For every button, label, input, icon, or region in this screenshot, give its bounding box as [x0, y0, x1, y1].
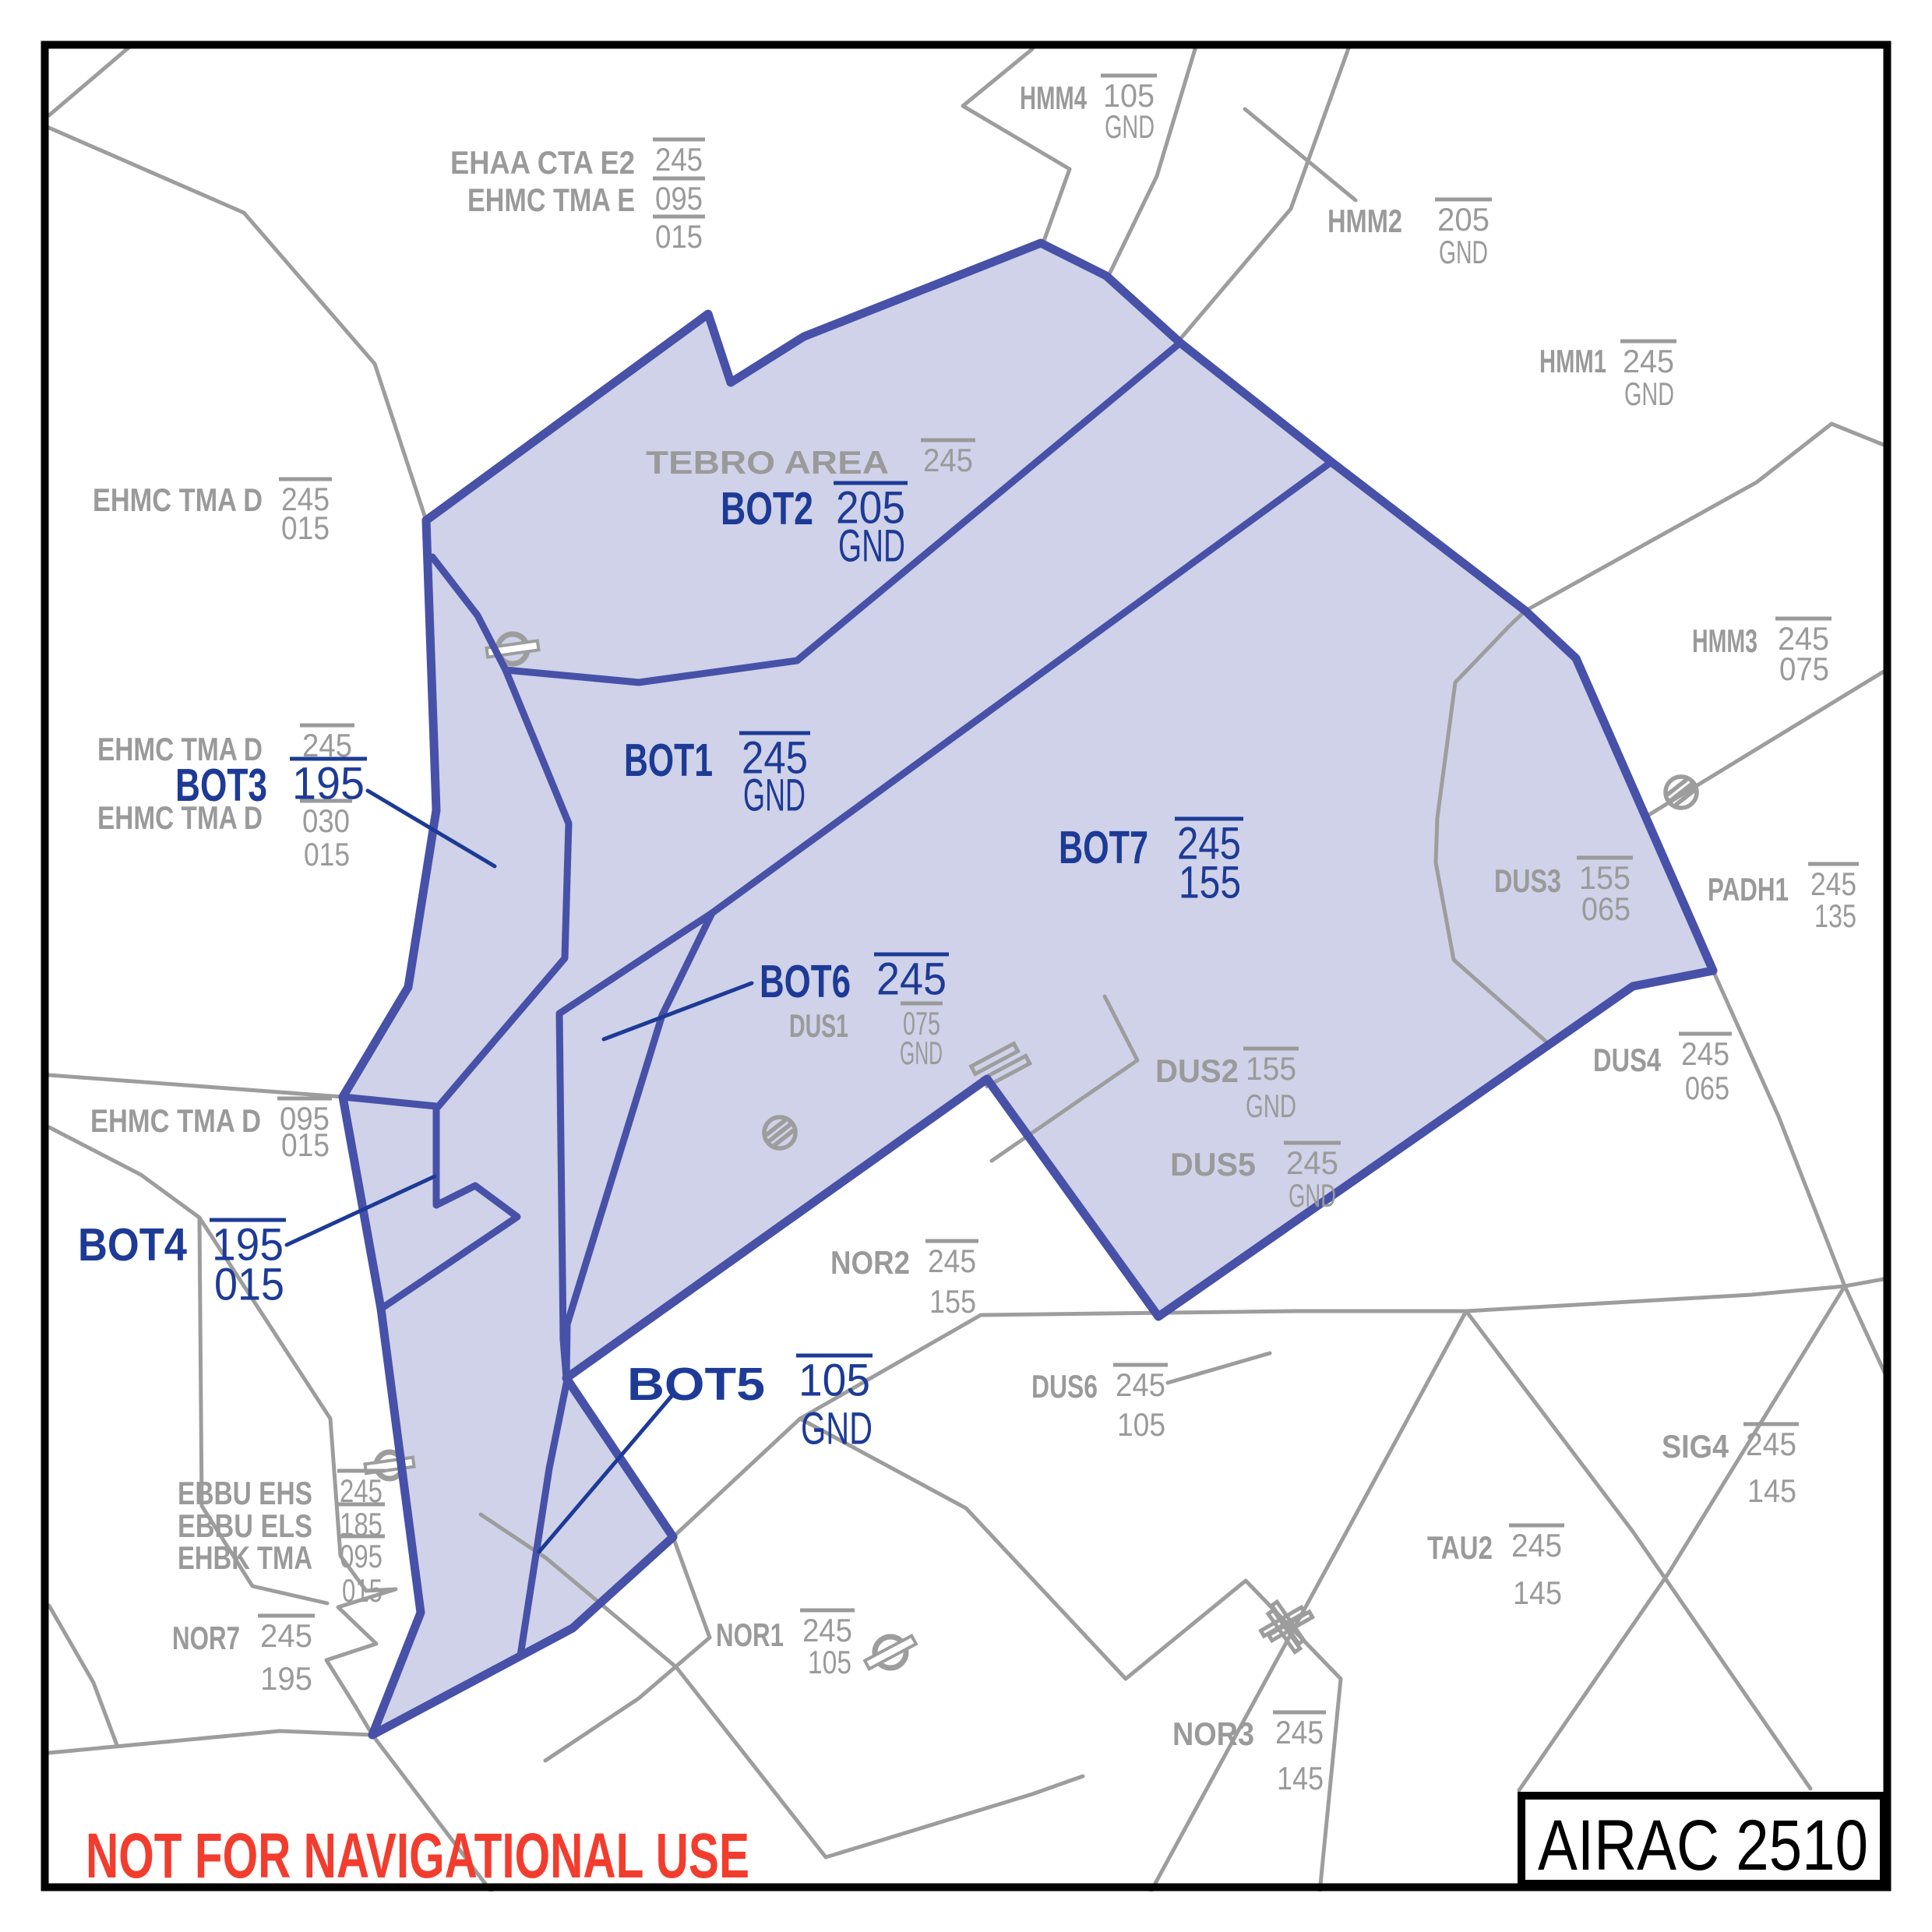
- svg-text:245: 245: [1810, 866, 1856, 902]
- svg-text:DUS1: DUS1: [789, 1007, 848, 1044]
- svg-text:DUS5: DUS5: [1170, 1146, 1256, 1183]
- svg-text:EBBU ELS: EBBU ELS: [178, 1507, 312, 1544]
- svg-text:105: 105: [808, 1644, 851, 1680]
- svg-text:GND: GND: [1105, 108, 1155, 145]
- svg-text:245: 245: [1286, 1144, 1338, 1181]
- svg-text:145: 145: [1513, 1574, 1562, 1611]
- svg-text:HMM3: HMM3: [1692, 622, 1757, 659]
- svg-text:PADH1: PADH1: [1708, 871, 1789, 908]
- svg-text:BOT7: BOT7: [1059, 822, 1148, 873]
- svg-text:BOT6: BOT6: [760, 956, 851, 1007]
- svg-text:GND: GND: [801, 1404, 873, 1454]
- svg-text:155: 155: [1179, 858, 1241, 908]
- svg-text:245: 245: [1623, 343, 1674, 379]
- svg-text:155: 155: [1246, 1050, 1296, 1087]
- svg-text:BOT4: BOT4: [78, 1219, 187, 1271]
- svg-text:065: 065: [1685, 1070, 1729, 1106]
- svg-text:105: 105: [1117, 1406, 1165, 1443]
- svg-text:EHMC TMA D: EHMC TMA D: [90, 1102, 261, 1139]
- svg-text:245: 245: [1746, 1426, 1796, 1462]
- svg-text:015: 015: [342, 1572, 383, 1609]
- svg-text:GND: GND: [743, 770, 806, 821]
- svg-text:095: 095: [340, 1538, 383, 1574]
- svg-text:145: 145: [1747, 1472, 1796, 1509]
- svg-text:245: 245: [876, 954, 947, 1005]
- svg-text:145: 145: [1277, 1760, 1324, 1796]
- svg-text:BOT1: BOT1: [624, 735, 713, 786]
- svg-text:GND: GND: [1439, 234, 1488, 270]
- svg-text:EHMC TMA E: EHMC TMA E: [467, 182, 635, 218]
- svg-text:DUS2: DUS2: [1155, 1052, 1239, 1089]
- svg-text:245: 245: [1275, 1714, 1324, 1750]
- svg-text:EBBU EHS: EBBU EHS: [178, 1475, 312, 1511]
- svg-text:TEBRO AREA: TEBRO AREA: [646, 444, 889, 481]
- svg-text:245: 245: [923, 442, 973, 478]
- svg-text:245: 245: [928, 1243, 976, 1279]
- svg-text:HMM2: HMM2: [1327, 203, 1402, 239]
- svg-text:TAU2: TAU2: [1427, 1529, 1493, 1566]
- svg-text:095: 095: [655, 180, 703, 217]
- svg-text:EHBK TMA: EHBK TMA: [178, 1539, 312, 1576]
- svg-text:DUS3: DUS3: [1494, 862, 1561, 899]
- svg-text:DUS6: DUS6: [1031, 1368, 1098, 1405]
- svg-text:105: 105: [799, 1356, 870, 1406]
- svg-text:DUS4: DUS4: [1593, 1042, 1661, 1078]
- svg-text:GND: GND: [1624, 375, 1674, 412]
- svg-text:015: 015: [281, 1126, 330, 1163]
- svg-text:065: 065: [1581, 890, 1631, 927]
- svg-text:015: 015: [655, 218, 703, 255]
- svg-text:075: 075: [1779, 650, 1829, 687]
- svg-text:245: 245: [1681, 1035, 1729, 1072]
- svg-text:EHMC TMA D: EHMC TMA D: [93, 481, 263, 518]
- svg-text:NOR7: NOR7: [172, 1620, 240, 1656]
- svg-text:EHMC TMA D: EHMC TMA D: [97, 799, 263, 836]
- svg-text:015: 015: [281, 509, 330, 546]
- svg-text:GND: GND: [900, 1035, 943, 1071]
- svg-text:GND: GND: [1289, 1177, 1336, 1214]
- svg-text:245: 245: [1511, 1527, 1562, 1564]
- svg-text:030: 030: [302, 802, 350, 839]
- svg-text:245: 245: [1116, 1366, 1165, 1403]
- svg-text:135: 135: [1814, 897, 1856, 934]
- svg-text:245: 245: [802, 1612, 852, 1648]
- svg-text:AIRAC 2510: AIRAC 2510: [1538, 1806, 1868, 1885]
- svg-text:EHAA CTA E2: EHAA CTA E2: [450, 144, 635, 181]
- svg-text:015: 015: [214, 1260, 284, 1310]
- svg-text:BOT2: BOT2: [721, 483, 813, 534]
- svg-text:245: 245: [260, 1617, 312, 1654]
- svg-text:245: 245: [655, 141, 703, 178]
- svg-text:205: 205: [1437, 201, 1490, 238]
- svg-text:HMM1: HMM1: [1539, 343, 1606, 379]
- svg-text:NOR3: NOR3: [1172, 1715, 1254, 1752]
- svg-text:SIG4: SIG4: [1662, 1428, 1729, 1465]
- svg-text:NOT FOR NAVIGATIONAL USE: NOT FOR NAVIGATIONAL USE: [86, 1821, 749, 1891]
- svg-text:155: 155: [929, 1283, 976, 1320]
- svg-text:195: 195: [260, 1660, 312, 1697]
- svg-text:NOR1: NOR1: [716, 1616, 784, 1653]
- svg-text:GND: GND: [1246, 1088, 1296, 1124]
- svg-text:HMM4: HMM4: [1020, 79, 1087, 116]
- svg-text:GND: GND: [838, 521, 905, 572]
- svg-text:015: 015: [304, 836, 350, 873]
- svg-text:BOT5: BOT5: [627, 1359, 765, 1410]
- svg-text:NOR2: NOR2: [830, 1244, 910, 1281]
